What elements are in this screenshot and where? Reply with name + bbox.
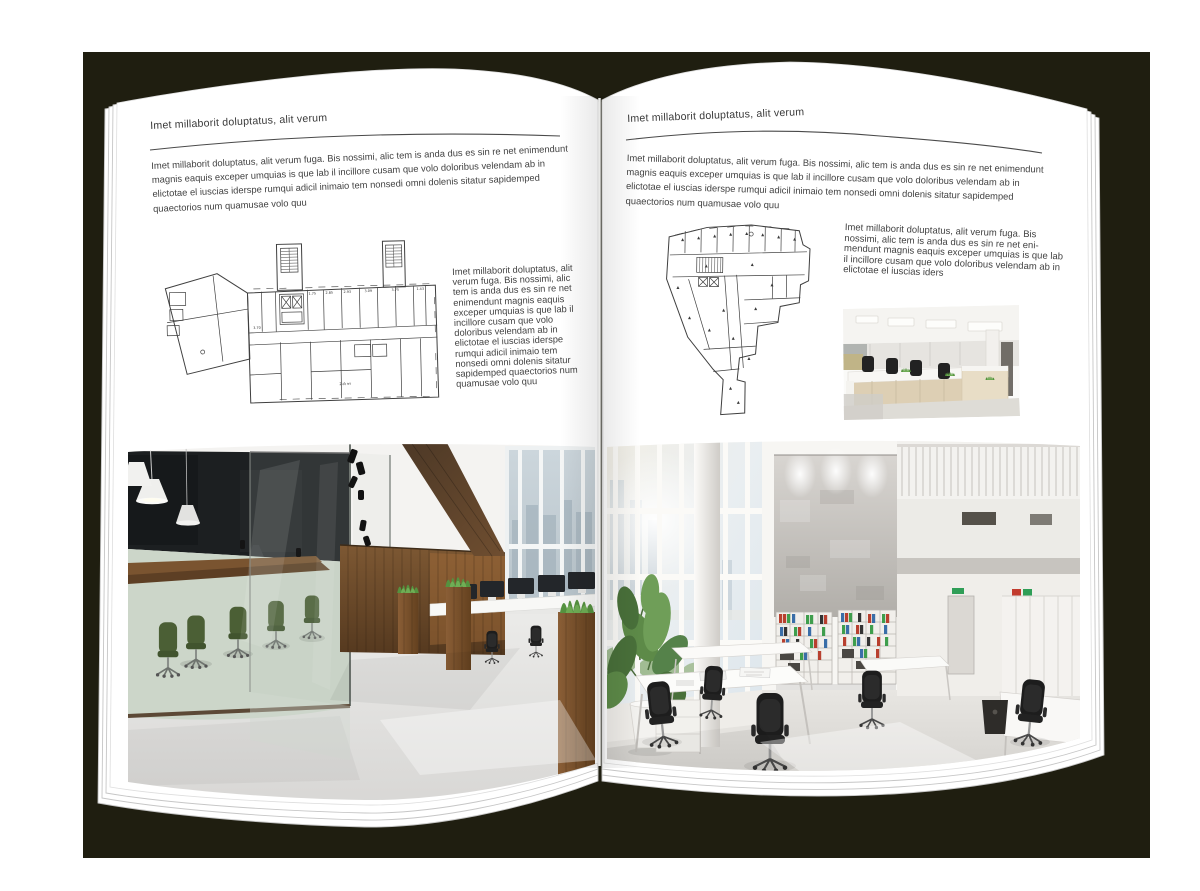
right-page-caption: Imet millaborit doluptatus, alit verum f… bbox=[843, 223, 1065, 284]
plan-label: 2.85 bbox=[325, 291, 333, 295]
plan-label: 1.43 bbox=[416, 287, 424, 291]
right-page-intro: Imet millaborit doluptatus, alit verum f… bbox=[625, 151, 1050, 220]
plan-label: 3.75 bbox=[391, 288, 399, 292]
right-page-photo-small bbox=[843, 305, 1020, 420]
brochure-spread-mockup: 1.75 2.85 2.93 3.09 3.75 1.43 3.70 2-й э… bbox=[0, 0, 1200, 891]
left-page-photo bbox=[122, 441, 596, 805]
book-artwork: 1.75 2.85 2.93 3.09 3.75 1.43 3.70 2-й э… bbox=[0, 0, 1200, 891]
plan-label: 3.09 bbox=[364, 289, 372, 293]
plan-label: 1.75 bbox=[308, 292, 316, 296]
left-page-caption: Imet millaborit doluptatus, alit verum f… bbox=[452, 263, 582, 390]
right-page-photo bbox=[585, 439, 1081, 787]
plan-label: 2.93 bbox=[343, 290, 351, 294]
plan-label: 3.70 bbox=[253, 326, 261, 330]
plan-label: 2-й эт bbox=[339, 381, 352, 386]
